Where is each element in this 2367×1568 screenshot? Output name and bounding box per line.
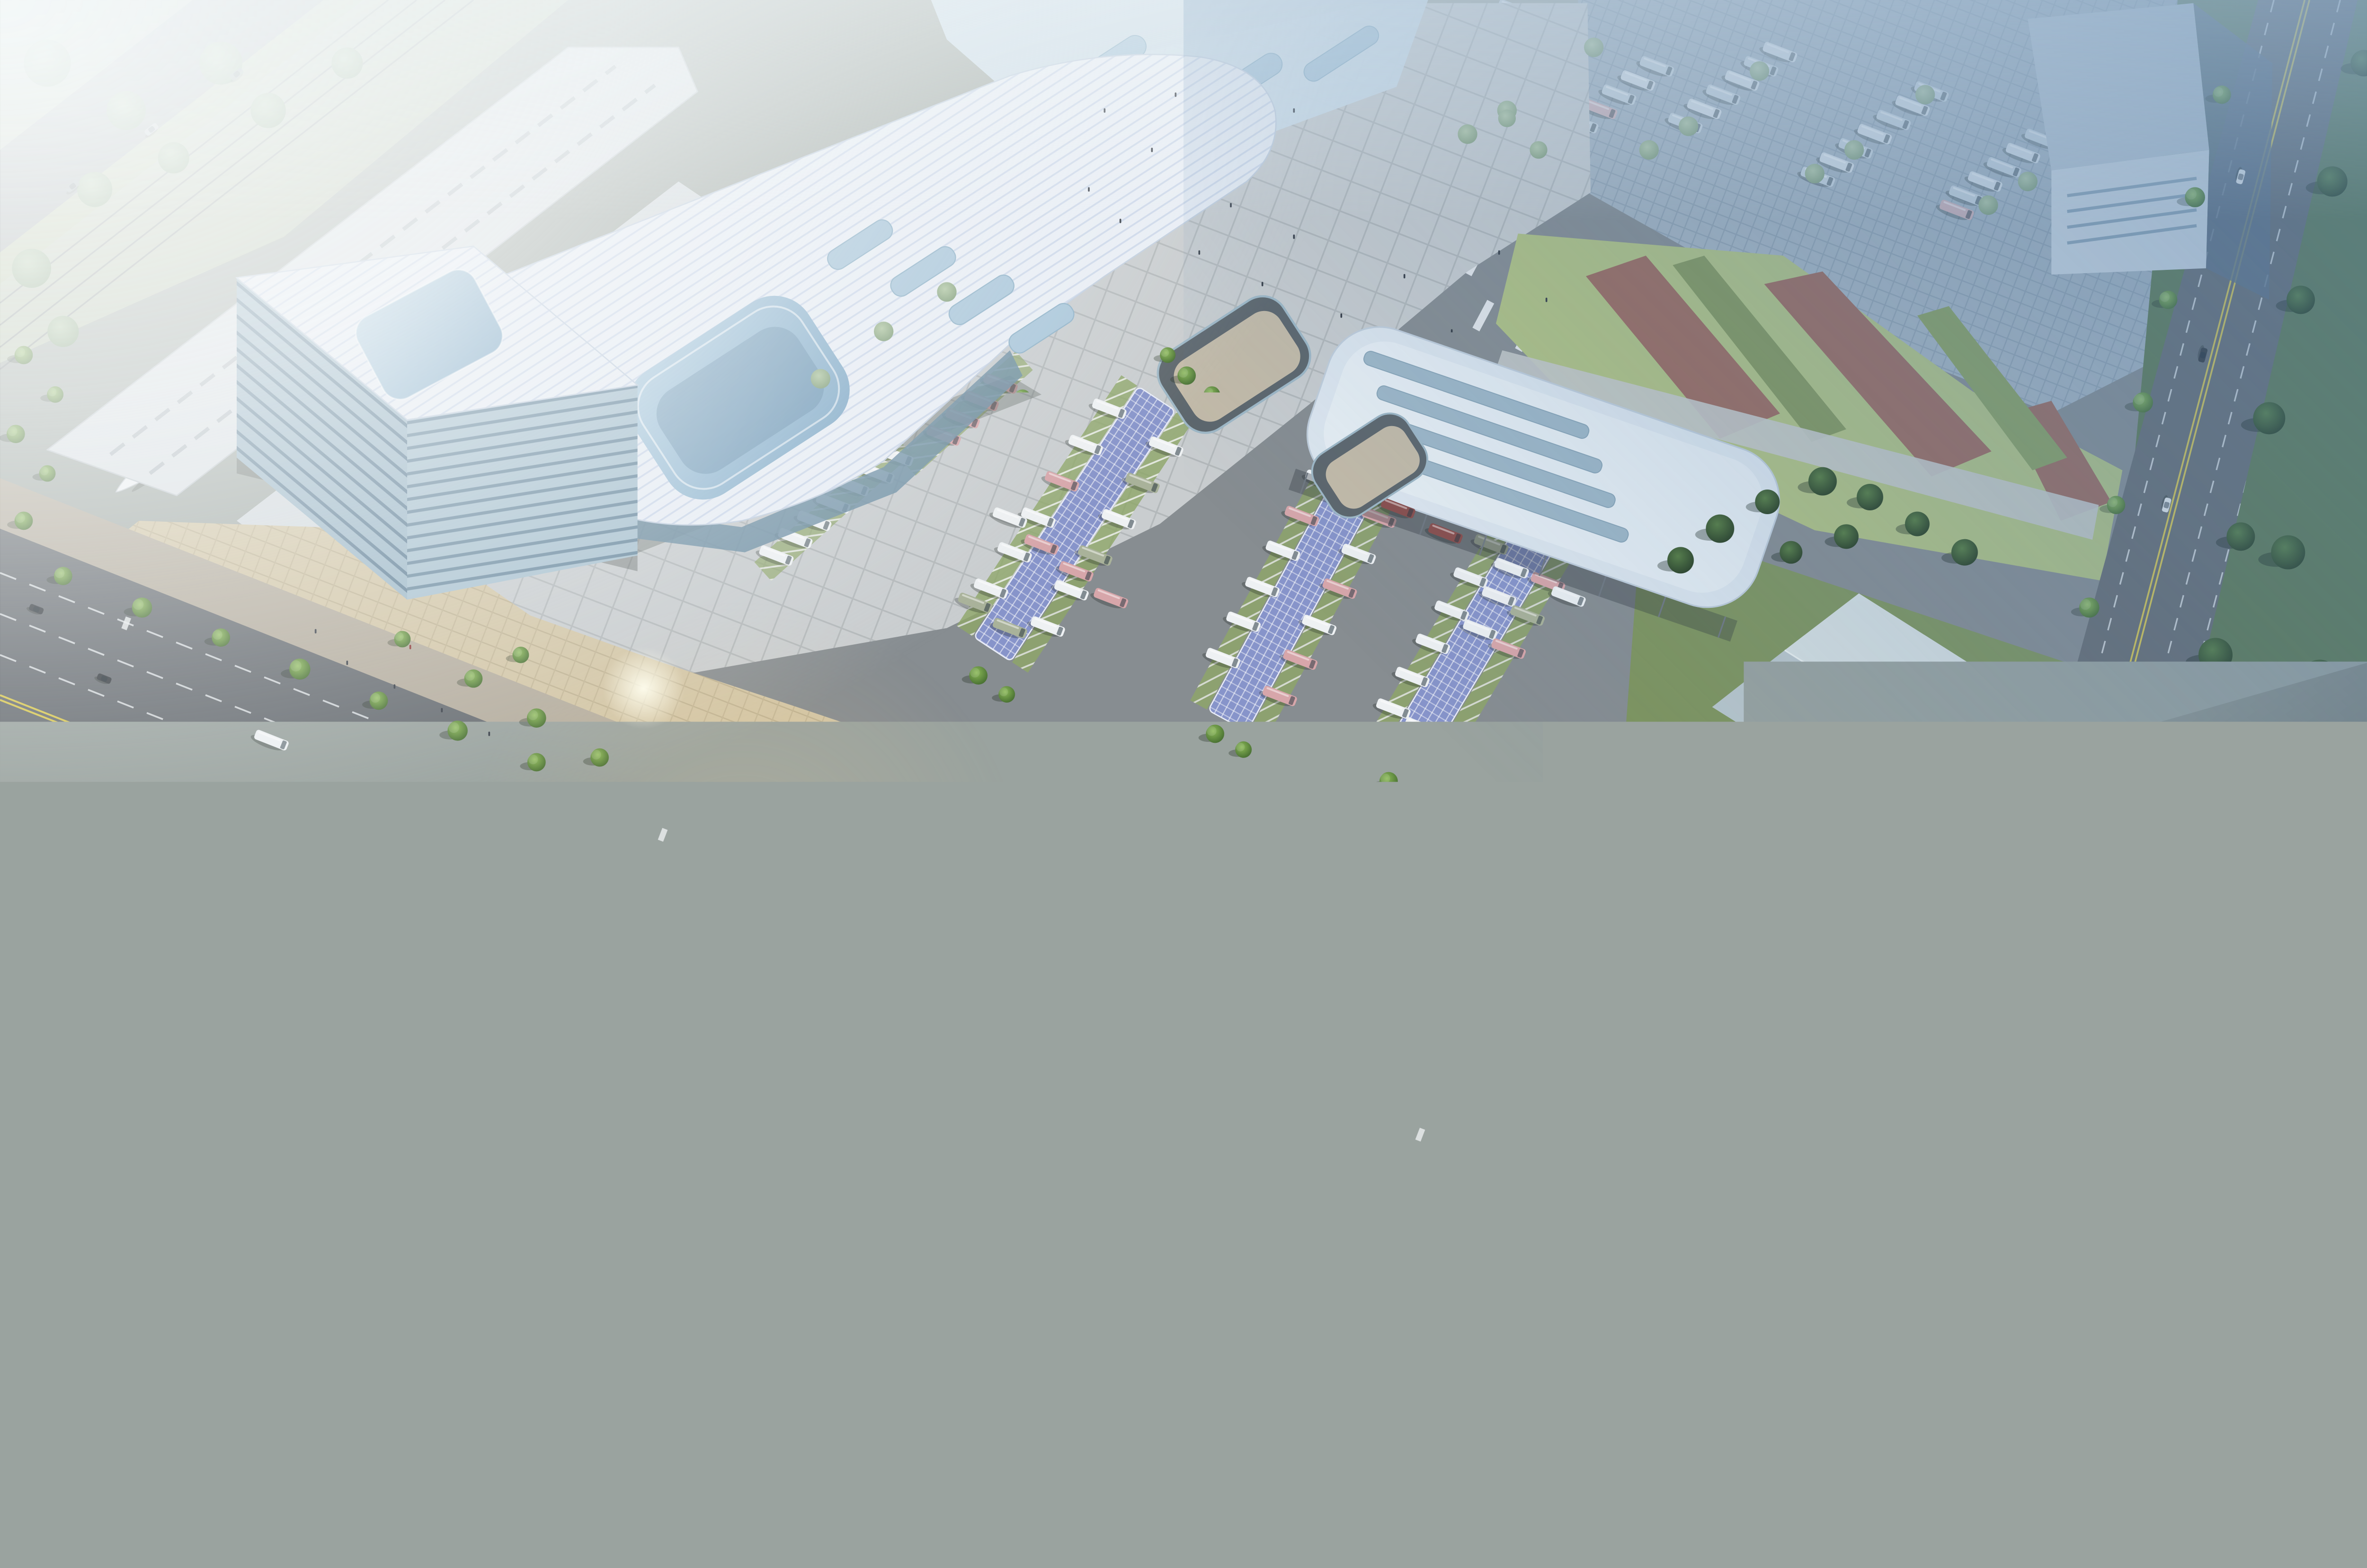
render-viewport: Aerial rendering of a public-transport h… [0, 0, 2367, 1307]
aerial-rendering: Aerial rendering of a public-transport h… [0, 0, 2367, 1307]
